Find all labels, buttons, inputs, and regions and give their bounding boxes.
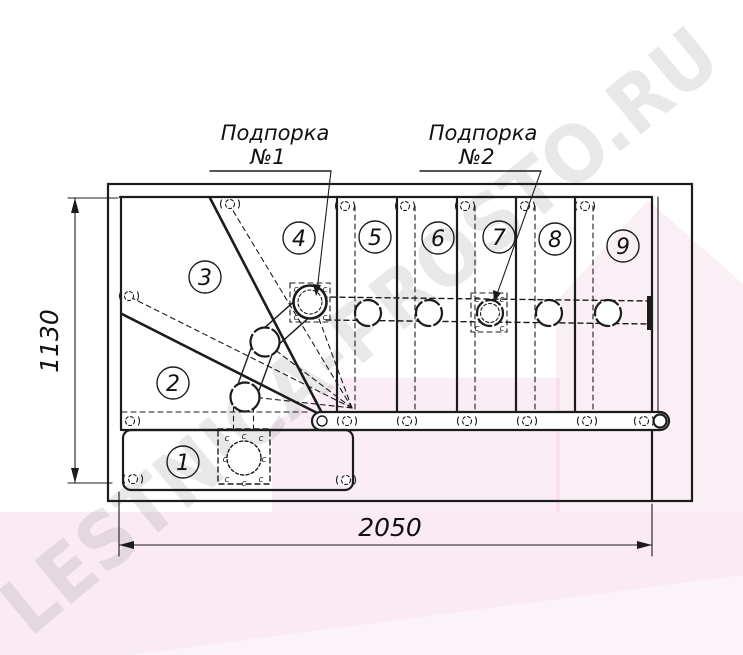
dim-v-value: 1130: [35, 309, 64, 373]
svg-text:6: 6: [431, 227, 445, 252]
svg-text:с: с: [225, 434, 230, 444]
post-step8: [536, 300, 562, 326]
support1-number: №1: [249, 145, 285, 169]
svg-text:с: с: [262, 455, 267, 465]
svg-text:с: с: [323, 285, 328, 295]
step-number-3: 3: [189, 261, 221, 293]
handrail-beam: [312, 412, 669, 430]
svg-text:с: с: [259, 434, 264, 444]
post-winder-b: [231, 383, 260, 412]
svg-text:с: с: [323, 313, 328, 323]
svg-text:с: с: [225, 475, 230, 485]
dimension-vertical: 1130: [35, 198, 118, 483]
svg-text:с: с: [500, 295, 505, 305]
post-step6: [416, 300, 442, 326]
svg-text:2: 2: [166, 372, 180, 397]
dim-h-value: 2050: [358, 513, 422, 542]
svg-text:5: 5: [368, 226, 382, 251]
svg-text:с: с: [242, 432, 247, 442]
support2-title: Подпорка: [429, 121, 538, 145]
dim-v-arrow-top: [71, 198, 79, 213]
svg-text:с: с: [294, 285, 299, 295]
svg-text:с: с: [475, 295, 480, 305]
svg-text:с: с: [475, 324, 480, 334]
pink-right-wedge: [556, 200, 743, 512]
staircase-plan-page: LESTNICA-PROSTO.RU: [0, 0, 743, 655]
stringer-end-anchor: [647, 296, 653, 330]
fastener-icon: [396, 202, 415, 211]
svg-text:4: 4: [292, 227, 306, 252]
post-step9: [595, 300, 621, 326]
post-step1-hidden: [227, 441, 261, 475]
dim-v-arrow-bottom: [71, 468, 79, 483]
post-winder-a: [251, 328, 280, 357]
svg-text:с: с: [500, 324, 505, 334]
svg-text:8: 8: [548, 228, 562, 253]
svg-text:3: 3: [198, 266, 212, 291]
support2-number: №2: [458, 145, 494, 169]
svg-text:7: 7: [492, 226, 506, 251]
svg-text:с: с: [223, 455, 228, 465]
step-number-5: 5: [359, 221, 391, 253]
post-step5: [355, 300, 381, 326]
fastener-icon: [336, 202, 355, 211]
svg-text:9: 9: [616, 235, 630, 260]
step-number-2: 2: [157, 367, 189, 399]
fastener-icon: [121, 417, 140, 426]
svg-text:с: с: [294, 313, 299, 323]
svg-text:с: с: [259, 475, 264, 485]
rail-left-cap-pin: [317, 416, 327, 426]
step-number-4: 4: [283, 222, 315, 254]
staircase-plan-drawing: LESTNICA-PROSTO.RU: [0, 0, 743, 655]
svg-text:с: с: [242, 479, 247, 489]
fastener-icon: [221, 200, 240, 209]
rail-right-cap-pin: [654, 415, 667, 428]
svg-text:1: 1: [176, 451, 190, 476]
fastener-icon: [120, 292, 139, 301]
support1-leader: [317, 171, 331, 291]
support1-title: Подпорка: [221, 121, 330, 145]
